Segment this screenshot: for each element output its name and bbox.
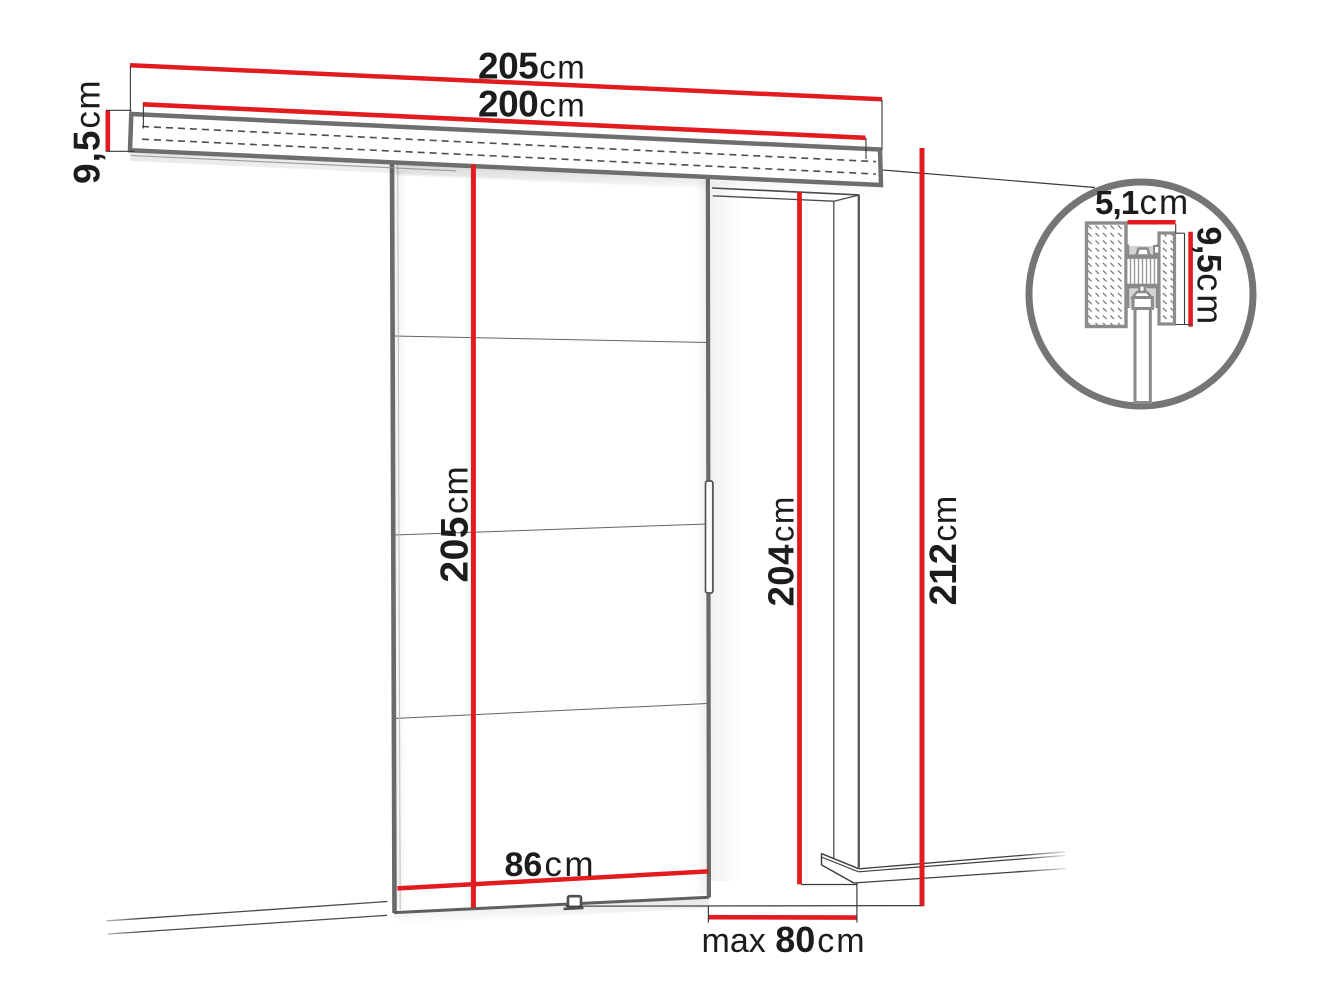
svg-text:212cm: 212cm — [923, 495, 965, 605]
svg-text:205cm: 205cm — [478, 46, 586, 87]
svg-text:9,5cm: 9,5cm — [67, 79, 108, 184]
svg-text:204cm: 204cm — [761, 495, 802, 606]
svg-text:max 80cm: max 80cm — [702, 919, 867, 960]
svg-text:200cm: 200cm — [478, 83, 586, 124]
svg-text:5,1cm: 5,1cm — [1095, 183, 1190, 222]
svg-text:9,5cm: 9,5cm — [1190, 227, 1231, 328]
svg-text:205cm: 205cm — [434, 465, 477, 582]
svg-text:86cm: 86cm — [505, 845, 596, 884]
